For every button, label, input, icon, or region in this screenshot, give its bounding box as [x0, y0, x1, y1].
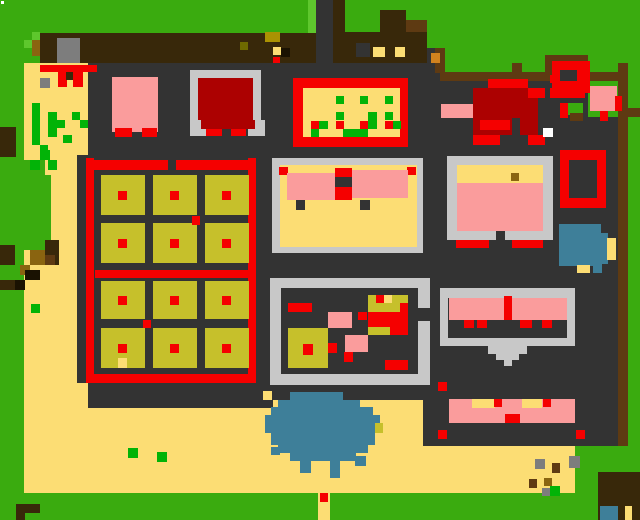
white-dot-topleft [1, 1, 4, 4]
pink-house [112, 77, 158, 132]
pen-interior [569, 160, 597, 198]
town-block-left-bottom [88, 400, 273, 408]
light-green-dot-1 [32, 32, 40, 40]
gray-dot-br-1 [535, 459, 545, 469]
pond-row-6 [271, 433, 375, 445]
warehouse-red-bar [288, 303, 312, 312]
black-dot-band [281, 48, 290, 57]
market-awning-right [352, 170, 408, 198]
warehouse-blob-tan [384, 295, 392, 303]
pond-right-prong [593, 263, 602, 273]
grid-border-top-1 [88, 160, 168, 170]
manor-pink-annex [441, 104, 473, 118]
pond-row-3 [271, 407, 373, 415]
grid-dot-extra-2 [143, 320, 151, 328]
shrine-door [560, 70, 577, 81]
manor-top-bar [488, 79, 528, 88]
stall-red-dot-2 [543, 399, 551, 407]
manor-body-right-red [528, 88, 545, 98]
light-green-dot-2 [24, 40, 32, 48]
plot-dot-12 [222, 344, 231, 353]
gray-dot-sand [40, 78, 50, 88]
path-horizontal-3 [588, 72, 622, 81]
grid-divider [95, 270, 256, 278]
inn-brown-dot [511, 173, 519, 181]
tan-dot-band-2 [373, 47, 385, 57]
inn-door-gap [496, 231, 505, 240]
warehouse-blob-red-1 [376, 295, 384, 303]
tan-dot-band-3 [395, 47, 405, 57]
garden-plant-2 [360, 96, 368, 104]
corner-red-3 [576, 430, 585, 439]
stable-red-dot-2 [477, 320, 487, 328]
market-post-1 [296, 200, 305, 210]
dark-block-top-2 [406, 20, 427, 32]
garden-plant-10 [343, 129, 368, 137]
tree-canopy-2 [45, 175, 51, 240]
garden-plant-8 [393, 121, 401, 129]
plot-dot-8 [170, 296, 179, 305]
charcoal-dot-band [356, 43, 370, 57]
pink-house-foot-2 [142, 128, 157, 137]
manor-body-right-low [520, 118, 538, 135]
green-dot-sand-2 [157, 452, 167, 462]
trunk-4 [0, 245, 15, 265]
warehouse-blob-red-4 [390, 327, 408, 335]
inn-top-court [457, 165, 543, 183]
pond-sand-dot [263, 391, 272, 400]
warehouse-red-bar-2 [385, 360, 408, 370]
trunk-6 [25, 270, 40, 280]
plot-dot-11 [170, 344, 179, 353]
trunk-2 [30, 250, 45, 265]
brown-dot-br-1 [552, 463, 560, 473]
plot-dot-3 [222, 191, 231, 200]
warehouse-door-gap [418, 308, 430, 321]
garden-red-3 [360, 121, 368, 129]
trunk-8 [0, 280, 15, 290]
manor-foot-left [473, 135, 500, 145]
warehouse-pink-1 [328, 312, 352, 328]
cottage-red-right [615, 96, 622, 111]
stable-notch-3 [504, 360, 512, 366]
stable-red-dot-4 [542, 320, 552, 328]
green-dot-sand-1 [128, 448, 138, 458]
tan-dot-band-1 [273, 47, 281, 55]
dark-block-top-1 [380, 10, 406, 32]
pond-olive-dot [375, 423, 383, 433]
garden-plant-4 [336, 112, 344, 120]
gray-dot-br-3 [542, 488, 550, 496]
barn-body-lower [201, 120, 255, 129]
cactus-arm-2 [72, 112, 80, 120]
shrine-top [552, 61, 590, 70]
blue-dot-br [600, 506, 618, 520]
cactus-arm-3 [80, 120, 88, 128]
plot-dot-6 [222, 239, 231, 248]
warehouse-blob-red-2 [400, 303, 408, 312]
trunk-7 [15, 280, 25, 290]
tree-canopy-1 [24, 160, 45, 250]
grid-border-top-2 [176, 160, 256, 170]
brown-bench-2 [16, 513, 25, 520]
barn-foot-1 [206, 129, 222, 136]
warehouse-red-dot-3 [328, 343, 337, 353]
path-horizontal-4 [622, 108, 640, 117]
pond-row-1 [290, 392, 343, 400]
barn-body [198, 78, 253, 120]
pond-row-5 [265, 424, 375, 433]
path-bump [512, 63, 522, 72]
pink-house-foot-1 [115, 128, 132, 137]
green-dot-br [550, 486, 560, 496]
warehouse-blob-olive-2 [368, 327, 390, 335]
stall-tan-2 [522, 399, 542, 408]
stable-red-dot-3 [520, 320, 532, 328]
market-stand-dark [335, 177, 352, 187]
garden-red-2 [336, 121, 344, 129]
warehouse-red-dot-2 [303, 344, 313, 355]
tree-bright-3 [48, 160, 57, 170]
red-dot-bottom [320, 493, 328, 502]
warehouse-red-dot-1 [358, 312, 367, 320]
plot-dot-10 [118, 344, 127, 353]
stall-red-dot-1 [494, 399, 502, 407]
pond-right-sand-2 [607, 238, 616, 260]
grid-border-bottom [87, 374, 256, 383]
shrine-left [552, 70, 560, 81]
pond-right-main [559, 224, 601, 266]
stable-notch-1 [488, 346, 527, 354]
vertical-road-light-stripe [308, 0, 316, 33]
plot-dot-2 [170, 191, 179, 200]
dirt-stripe-right [618, 63, 628, 446]
stable-red-dot-1 [464, 320, 474, 328]
cactus-stem-3 [40, 145, 48, 160]
garden-plant-6 [368, 112, 377, 129]
market-post-2 [360, 200, 370, 210]
market-corner-dot-2 [407, 167, 416, 175]
tan-dot-br [625, 506, 632, 520]
corner-red-2 [438, 430, 447, 439]
plot-dot-1 [118, 191, 127, 200]
orange-dot [431, 53, 440, 63]
mustard-dot-band [265, 32, 280, 42]
garden-plant-5 [385, 112, 393, 120]
gray-dot-br-2 [569, 456, 580, 468]
garden-plant-9 [311, 129, 319, 137]
garden-red-4 [385, 121, 393, 129]
grid-border-left [86, 158, 94, 383]
grid-dot-extra-1 [192, 216, 200, 225]
stable-red-line [504, 296, 512, 320]
plot-tan-pixel [118, 358, 127, 368]
pond-row-8 [290, 453, 356, 461]
tree-bright-2 [30, 160, 40, 170]
brown-square-left [0, 127, 16, 157]
warehouse-red-dot-4 [344, 352, 353, 362]
vertical-road [316, 0, 333, 63]
garden-plant-7 [319, 121, 328, 129]
shrine-right [577, 70, 590, 81]
cottage-red-dot [600, 111, 608, 121]
market-awning-left [287, 173, 337, 200]
warehouse-pink-2 [345, 335, 368, 352]
barn-foot-2 [231, 129, 246, 136]
pond-prong-1 [300, 461, 311, 473]
shrine-post [560, 103, 568, 118]
dark-olive-dot-band [240, 42, 248, 50]
vertical-road-edge [333, 0, 345, 33]
cottage-pink [590, 86, 617, 111]
shrine-bar [550, 88, 585, 98]
warehouse-blob-red-3 [368, 312, 408, 327]
garden-red-1 [311, 121, 319, 129]
cactus-arm-1 [57, 120, 65, 128]
gray-square-top [57, 38, 80, 63]
pond-dot [271, 447, 280, 455]
plot-dot-4 [118, 239, 127, 248]
pond-row-4 [265, 415, 380, 424]
red-drip-2 [73, 72, 83, 87]
garden-plant-3 [385, 96, 393, 104]
barn-frame-top [190, 70, 261, 78]
pond-prong-2 [330, 461, 340, 478]
stall-tan-1 [472, 399, 495, 408]
stall-red-center [505, 414, 520, 423]
pond-prong-3 [355, 456, 366, 466]
cactus-stem-1 [32, 103, 40, 145]
pond-row-7 [278, 445, 368, 453]
pond-right-sand-1 [577, 265, 590, 273]
plot-dot-7 [118, 296, 127, 305]
inn-foot-2 [512, 240, 543, 248]
plot-dot-9 [222, 296, 231, 305]
garden-plant-1 [336, 96, 344, 104]
brown-dot-br-3 [544, 478, 552, 486]
brown-bench-1 [16, 504, 40, 513]
inn-foot-1 [456, 240, 489, 248]
trunk-3 [45, 255, 55, 265]
cactus-arm-4 [63, 135, 72, 143]
shrine-brown-bar [570, 113, 583, 121]
pixel-map [0, 0, 640, 520]
plot-dot-5 [170, 239, 179, 248]
green-dot-left [31, 304, 40, 313]
corner-red-1 [438, 382, 447, 391]
inn-body [457, 183, 543, 231]
cactus-stem-2 [48, 112, 57, 137]
red-banner [40, 65, 97, 72]
manor-white-dot [543, 128, 553, 137]
manor-inner-red [480, 120, 510, 130]
brown-dot-br-2 [529, 479, 537, 488]
